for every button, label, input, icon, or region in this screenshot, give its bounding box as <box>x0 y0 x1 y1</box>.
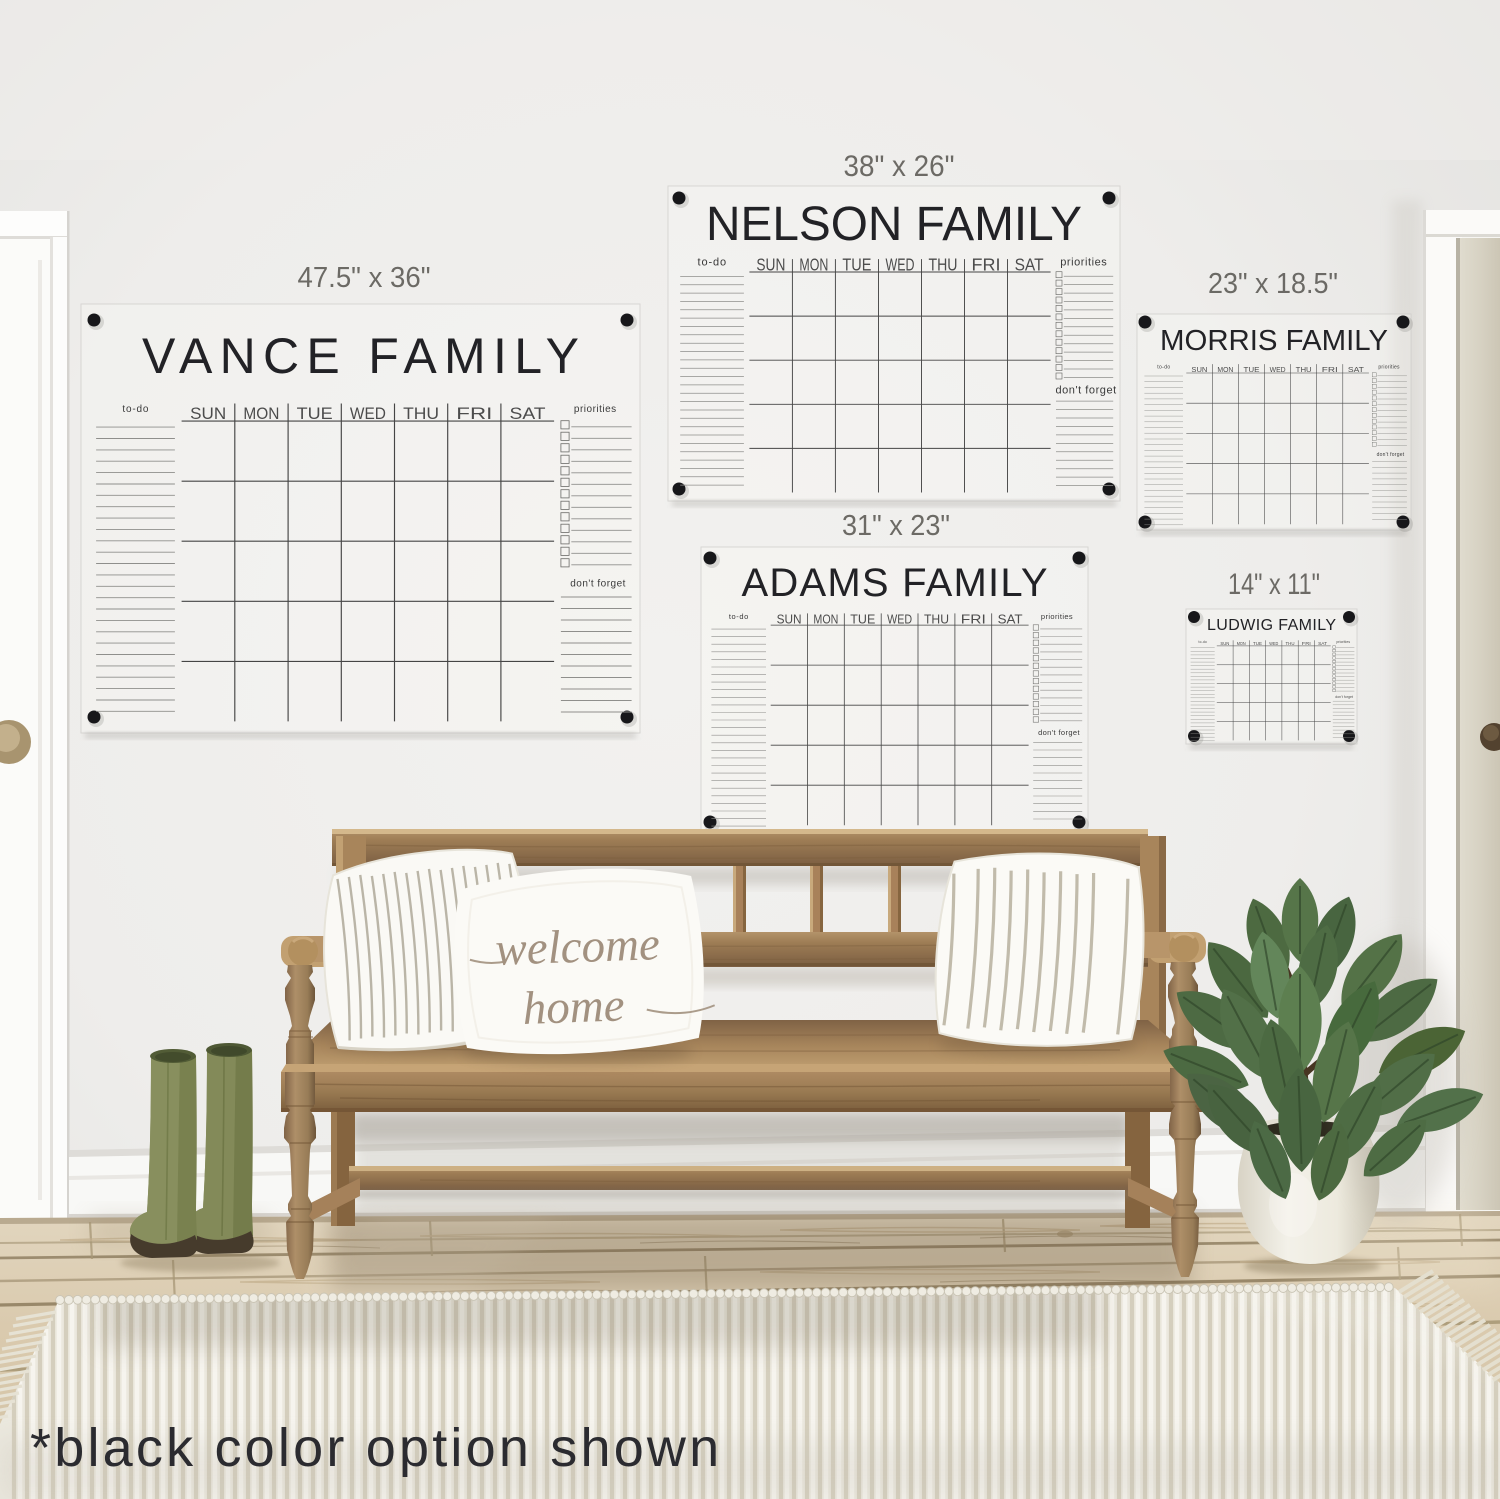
svg-text:don't forget: don't forget <box>1335 695 1353 699</box>
svg-text:47.5" x 36": 47.5" x 36" <box>298 262 431 294</box>
svg-text:THU: THU <box>929 254 958 274</box>
svg-text:SAT: SAT <box>1015 254 1044 274</box>
svg-text:priorities: priorities <box>1378 364 1400 370</box>
svg-text:WED: WED <box>1270 365 1287 374</box>
svg-text:SAT: SAT <box>1348 365 1364 374</box>
svg-text:THU: THU <box>403 404 439 423</box>
svg-text:don't forget: don't forget <box>1377 452 1405 458</box>
svg-text:WED: WED <box>886 254 915 274</box>
svg-text:to-do: to-do <box>729 612 749 621</box>
svg-text:MON: MON <box>799 254 828 274</box>
svg-text:priorities: priorities <box>574 404 617 415</box>
svg-text:FRI: FRI <box>972 254 1001 274</box>
svg-text:THU: THU <box>1286 641 1295 646</box>
svg-text:MON: MON <box>1237 641 1246 646</box>
svg-text:WED: WED <box>1269 641 1278 646</box>
svg-text:TUE: TUE <box>850 612 875 627</box>
svg-text:MON: MON <box>1217 365 1233 374</box>
svg-text:SUN: SUN <box>756 254 785 274</box>
svg-text:SAT: SAT <box>1318 641 1327 646</box>
svg-text:VANCE FAMILY: VANCE FAMILY <box>142 328 579 384</box>
svg-text:SAT: SAT <box>998 612 1023 627</box>
svg-text:SAT: SAT <box>510 404 546 423</box>
svg-text:SUN: SUN <box>1220 641 1229 646</box>
svg-text:SUN: SUN <box>190 404 226 423</box>
svg-text:home: home <box>522 979 626 1035</box>
svg-text:don't forget: don't forget <box>1038 728 1080 737</box>
svg-text:THU: THU <box>1296 365 1312 374</box>
svg-text:23" x 18.5": 23" x 18.5" <box>1208 268 1338 300</box>
svg-text:TUE: TUE <box>297 404 333 423</box>
svg-text:FRI: FRI <box>456 404 492 423</box>
svg-text:TUE: TUE <box>842 254 871 274</box>
svg-text:don't forget: don't forget <box>570 578 626 589</box>
svg-text:MON: MON <box>243 404 279 423</box>
svg-text:ADAMS FAMILY: ADAMS FAMILY <box>742 561 1048 605</box>
svg-text:MORRIS FAMILY: MORRIS FAMILY <box>1160 325 1388 357</box>
svg-text:MON: MON <box>813 612 838 627</box>
svg-text:THU: THU <box>924 612 949 627</box>
svg-text:priorities: priorities <box>1041 612 1073 621</box>
svg-text:priorities: priorities <box>1060 256 1107 268</box>
svg-text:38" x 26": 38" x 26" <box>844 150 955 183</box>
svg-text:LUDWIG FAMILY: LUDWIG FAMILY <box>1207 617 1336 634</box>
svg-text:to-do: to-do <box>1199 640 1208 644</box>
svg-text:FRI: FRI <box>1322 365 1338 374</box>
svg-text:don't forget: don't forget <box>1055 384 1116 396</box>
svg-text:31" x 23": 31" x 23" <box>842 510 950 542</box>
svg-text:14" x 11": 14" x 11" <box>1228 568 1320 601</box>
svg-text:to-do: to-do <box>122 404 149 415</box>
svg-text:TUE: TUE <box>1253 641 1262 646</box>
svg-text:FRI: FRI <box>1302 641 1311 646</box>
svg-text:NELSON FAMILY: NELSON FAMILY <box>706 198 1082 251</box>
svg-text:WED: WED <box>350 404 386 423</box>
svg-text:TUE: TUE <box>1244 365 1260 374</box>
svg-text:FRI: FRI <box>961 612 986 627</box>
svg-text:SUN: SUN <box>777 612 802 627</box>
svg-text:welcome: welcome <box>494 918 660 976</box>
svg-text:to-do: to-do <box>698 256 727 268</box>
svg-text:to-do: to-do <box>1157 364 1170 370</box>
svg-text:*black color option shown: *black color option shown <box>30 1418 722 1478</box>
svg-text:priorities: priorities <box>1336 640 1350 644</box>
svg-text:WED: WED <box>887 612 912 627</box>
svg-text:SUN: SUN <box>1191 365 1207 374</box>
